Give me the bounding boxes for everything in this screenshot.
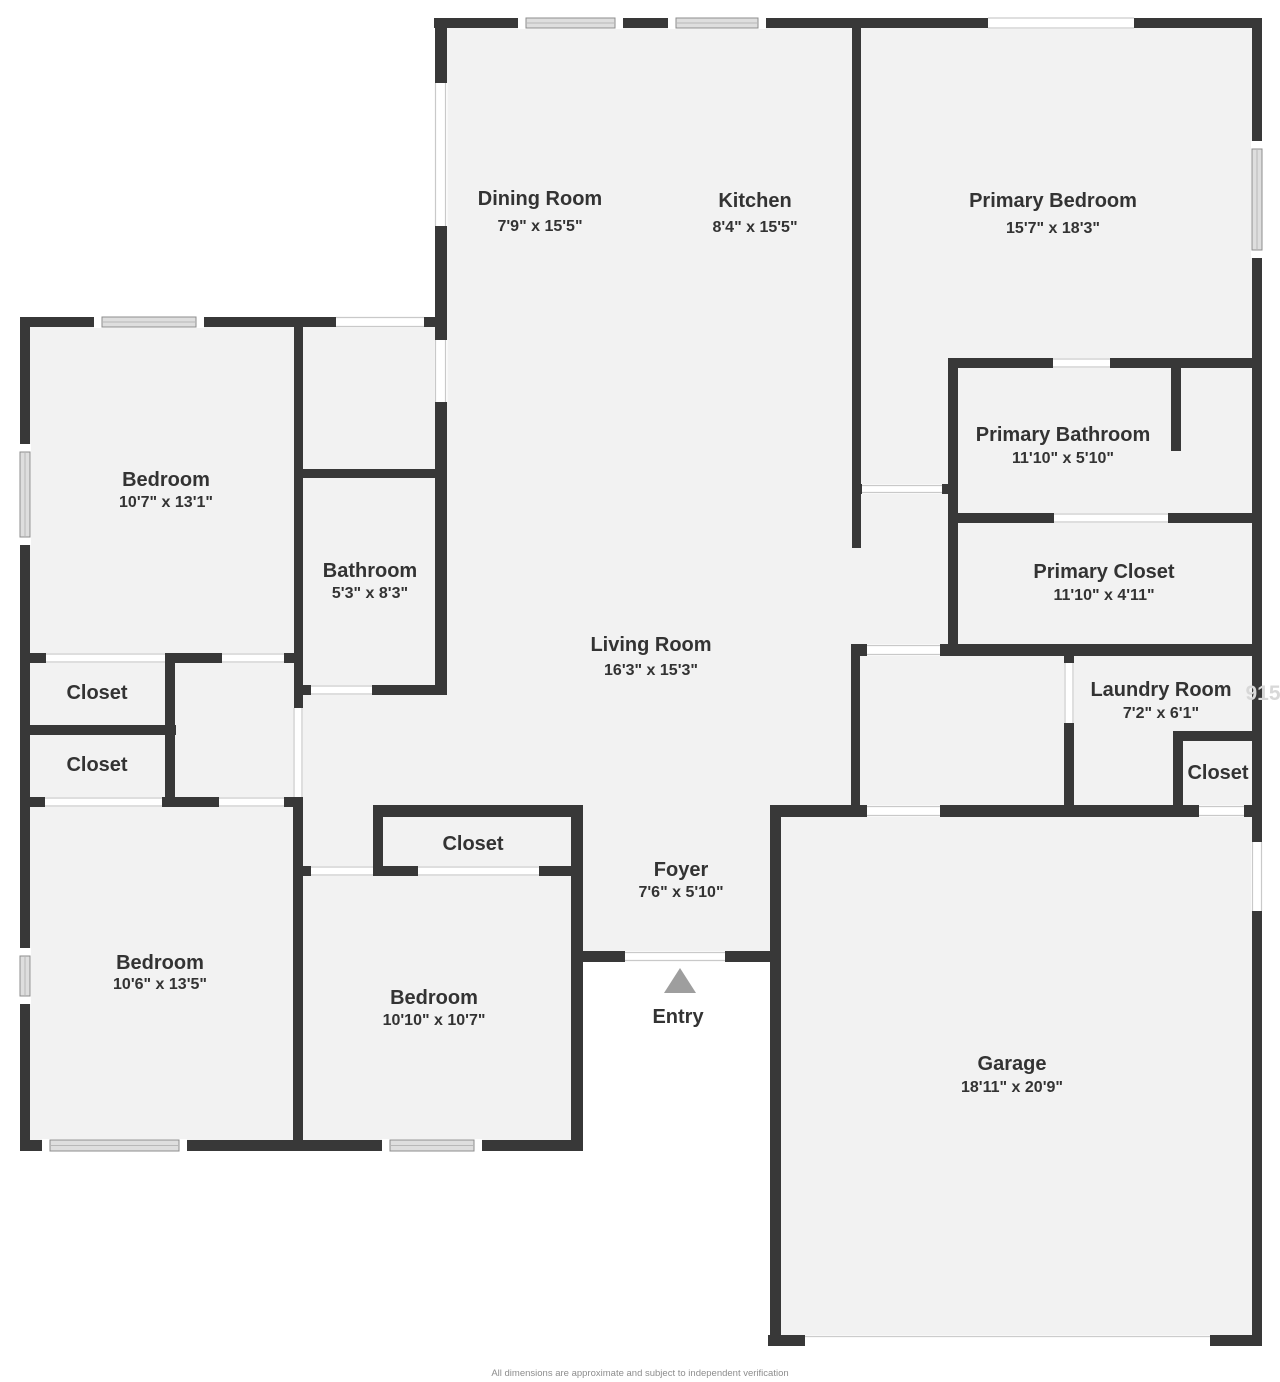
svg-text:5'3" x 8'3": 5'3" x 8'3" [332,585,408,602]
svg-text:11'10" x 4'11": 11'10" x 4'11" [1053,587,1154,604]
svg-text:Dining Room: Dining Room [478,188,602,210]
svg-text:Entry: Entry [652,1006,704,1028]
svg-text:Primary Bedroom: Primary Bedroom [969,190,1137,212]
svg-text:11'10" x 5'10": 11'10" x 5'10" [1012,450,1114,467]
svg-text:15'7" x 18'3": 15'7" x 18'3" [1006,220,1100,237]
svg-text:Primary Closet: Primary Closet [1033,561,1175,583]
svg-text:Bathroom: Bathroom [323,560,417,582]
svg-text:10'7" x 13'1": 10'7" x 13'1" [119,494,213,511]
svg-text:10'6" x 13'5": 10'6" x 13'5" [113,976,207,993]
svg-text:Living Room: Living Room [590,634,711,656]
svg-text:Closet: Closet [442,833,503,855]
svg-text:Bedroom: Bedroom [116,952,204,974]
svg-text:7'6" x 5'10": 7'6" x 5'10" [638,884,723,901]
svg-text:10'10" x 10'7": 10'10" x 10'7" [383,1012,486,1029]
svg-text:8'4" x 15'5": 8'4" x 15'5" [712,219,797,236]
svg-text:Primary Bathroom: Primary Bathroom [976,424,1151,446]
svg-text:7'9" x 15'5": 7'9" x 15'5" [497,218,582,235]
svg-text:Bedroom: Bedroom [390,987,478,1009]
svg-text:18'11" x 20'9": 18'11" x 20'9" [961,1079,1063,1096]
svg-text:16'3" x 15'3": 16'3" x 15'3" [604,662,698,679]
svg-text:Closet: Closet [1187,762,1248,784]
svg-text:Garage: Garage [978,1053,1047,1075]
svg-text:Closet: Closet [66,682,127,704]
svg-text:Kitchen: Kitchen [718,190,791,212]
svg-text:915: 915 [1245,682,1280,705]
svg-text:Bedroom: Bedroom [122,469,210,491]
svg-text:7'2" x 6'1": 7'2" x 6'1" [1123,705,1199,722]
svg-text:Closet: Closet [66,754,127,776]
svg-text:Laundry Room: Laundry Room [1090,679,1231,701]
svg-text:Foyer: Foyer [654,859,709,881]
svg-text:All dimensions are approximate: All dimensions are approximate and subje… [491,1368,788,1379]
